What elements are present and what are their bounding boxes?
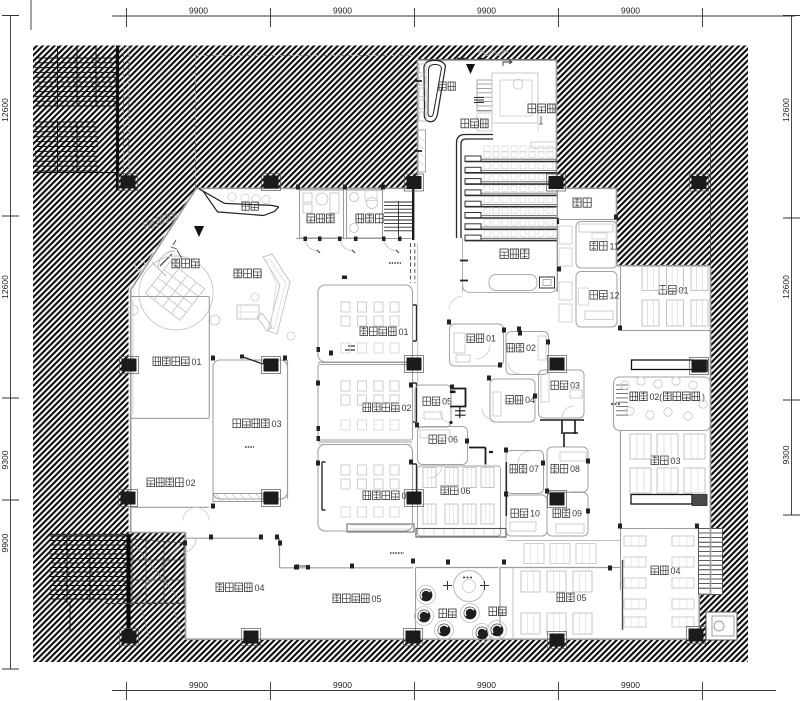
svg-text:02: 02	[526, 343, 536, 353]
svg-text:9900: 9900	[333, 680, 352, 690]
svg-text:12: 12	[610, 290, 620, 300]
svg-text:03: 03	[272, 419, 282, 429]
svg-text:12600: 12600	[781, 275, 791, 299]
svg-text:9300: 9300	[781, 445, 791, 464]
svg-text:9900: 9900	[333, 6, 352, 16]
svg-text:9300: 9300	[0, 450, 10, 469]
svg-text:11: 11	[610, 241, 619, 251]
svg-text:9900: 9900	[189, 680, 208, 690]
svg-text:05: 05	[442, 397, 452, 407]
svg-text:01: 01	[399, 327, 409, 337]
svg-text:01: 01	[192, 357, 202, 367]
svg-text:9900: 9900	[189, 6, 208, 16]
svg-text:12600: 12600	[781, 98, 791, 122]
svg-text:9900: 9900	[477, 680, 496, 690]
svg-text:10: 10	[530, 509, 540, 519]
svg-text:9900: 9900	[621, 680, 640, 690]
svg-text:12600: 12600	[0, 275, 10, 299]
svg-text:04: 04	[255, 583, 265, 593]
svg-text:): )	[702, 392, 705, 402]
svg-text:03: 03	[570, 381, 580, 391]
svg-text:05: 05	[372, 594, 382, 604]
svg-text:02: 02	[402, 403, 412, 413]
svg-text:09: 09	[572, 509, 582, 519]
svg-text:07: 07	[529, 464, 539, 474]
svg-text:01: 01	[486, 334, 496, 344]
svg-text:02: 02	[186, 478, 196, 488]
svg-text:06: 06	[448, 435, 458, 445]
svg-text:9900: 9900	[621, 6, 640, 16]
svg-text:9900: 9900	[0, 533, 10, 552]
svg-text:12600: 12600	[0, 98, 10, 122]
svg-text:08: 08	[570, 464, 580, 474]
svg-text:05: 05	[577, 593, 587, 603]
svg-text:03: 03	[671, 456, 681, 466]
svg-text:9900: 9900	[477, 6, 496, 16]
svg-text:02(: 02(	[650, 392, 663, 402]
